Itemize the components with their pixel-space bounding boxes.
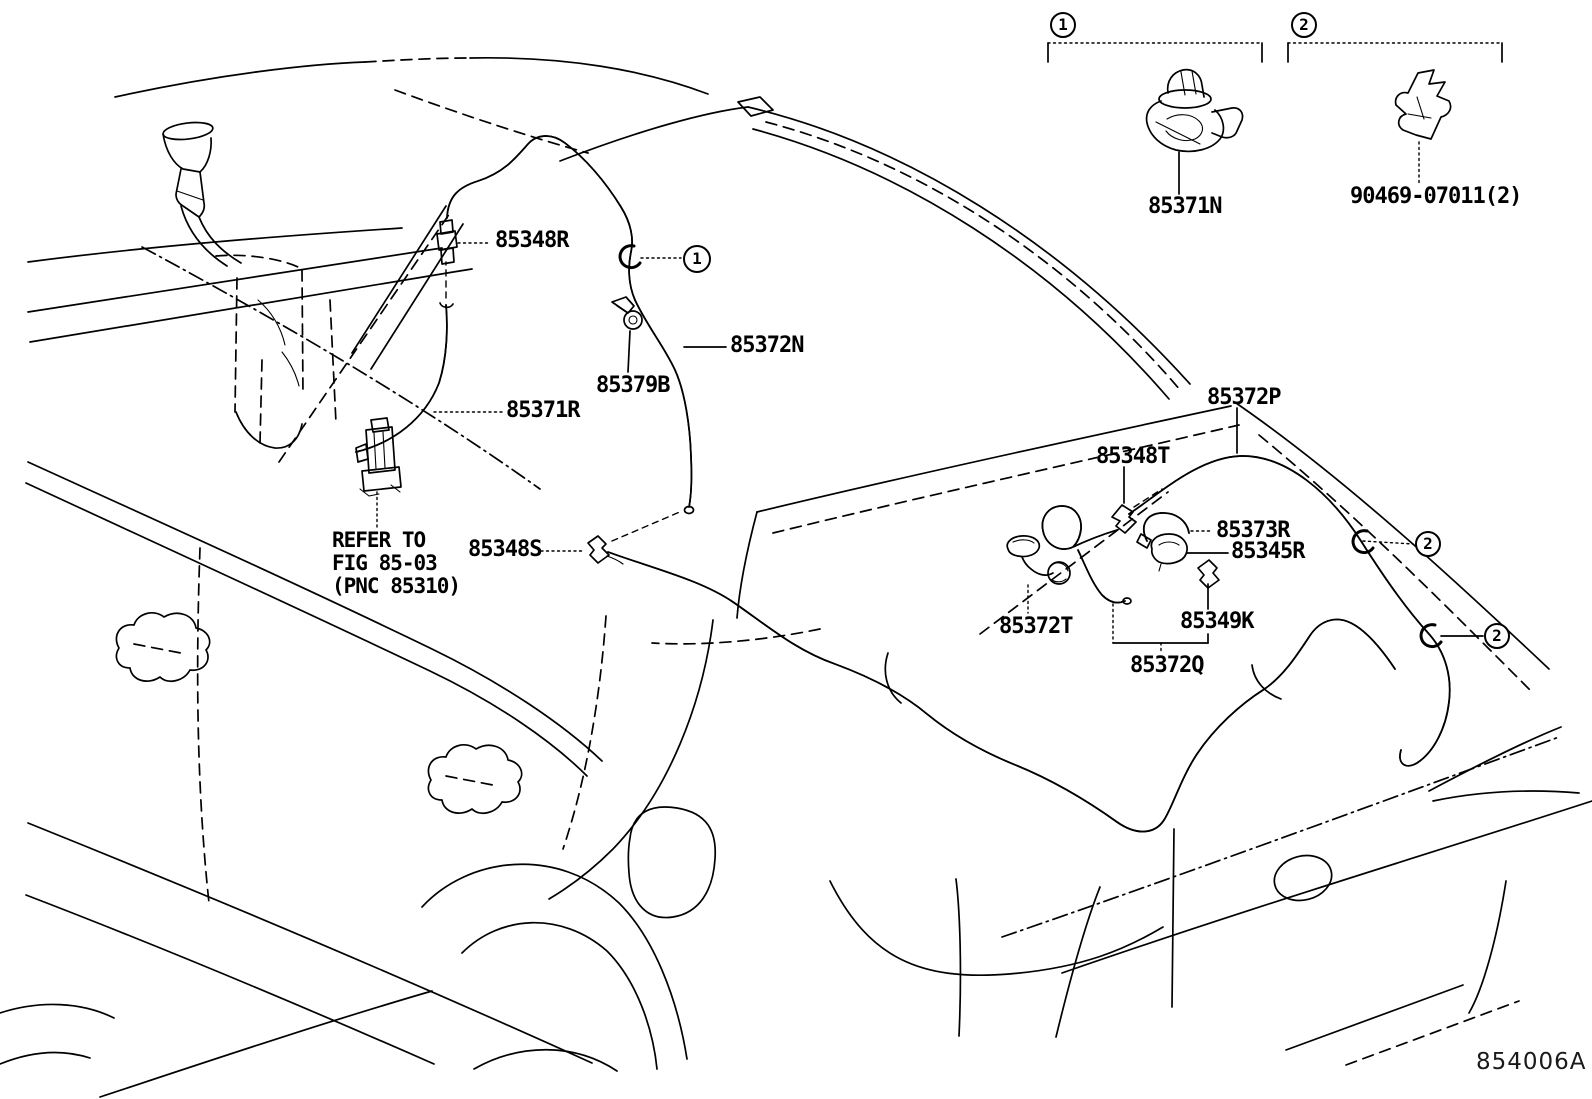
wheel-arch-outer <box>422 864 687 1059</box>
washer-reservoir-assembly <box>162 120 401 496</box>
screw-grommet-90469-part <box>1396 70 1451 139</box>
diagram-line-art <box>0 0 1592 1099</box>
leader-lines <box>377 43 1502 653</box>
reference-note-line: REFER TO <box>332 529 460 552</box>
callout-2-on-hose-upper[interactable]: 2 <box>1415 531 1441 557</box>
clip-85371N-part <box>1147 70 1243 152</box>
wheel-arch-inner <box>462 923 657 1069</box>
part-label-85345r[interactable]: 85345R <box>1231 541 1304 563</box>
callout-inset-2[interactable]: 2 <box>1291 12 1317 38</box>
part-label-90469-07011[interactable]: 90469-07011(2) <box>1350 186 1521 208</box>
nozzle-85345R-part <box>1151 534 1187 571</box>
elbow-85348S-part <box>588 536 623 564</box>
callout-1-on-hose[interactable]: 1 <box>683 245 711 273</box>
door-handle <box>428 745 521 813</box>
callout-inset-1[interactable]: 1 <box>1050 12 1076 38</box>
part-label-85348t[interactable]: 85348T <box>1096 446 1169 468</box>
connector-85373R-part <box>1137 534 1151 548</box>
washer-pump <box>356 418 401 496</box>
part-label-85372t[interactable]: 85372T <box>999 616 1072 638</box>
hatch-badge-oval <box>1270 850 1337 907</box>
rear-washer-parts-diagram: 85348R 85372N 85379B 85371R 85348S 85371… <box>0 0 1592 1099</box>
part-label-85372n[interactable]: 85372N <box>730 335 803 357</box>
part-label-85372p[interactable]: 85372P <box>1207 387 1280 409</box>
hose-fittings <box>437 220 1441 647</box>
part-label-85371r[interactable]: 85371R <box>506 400 579 422</box>
figure-code: 854006A <box>1476 1049 1587 1075</box>
reference-note: REFER TO FIG 85-03 (PNC 85310) <box>332 529 460 598</box>
joint-85348T-part <box>1112 505 1136 533</box>
vehicle-body-lines <box>0 58 1592 1097</box>
part-label-85379b[interactable]: 85379B <box>596 375 669 397</box>
filler-funnel-mouth <box>162 120 214 142</box>
grommet-85379B-part <box>612 297 642 329</box>
joint-85348R-part <box>437 220 457 264</box>
part-label-85349k[interactable]: 85349K <box>1180 611 1253 633</box>
reference-note-line: (PNC 85310) <box>332 575 460 598</box>
part-label-85348s[interactable]: 85348S <box>468 539 541 561</box>
part-label-85348r[interactable]: 85348R <box>495 230 568 252</box>
nozzle-85372T-part <box>1007 536 1070 584</box>
reference-note-line: FIG 85-03 <box>332 552 460 575</box>
door-handle <box>116 613 209 681</box>
part-label-85371n[interactable]: 85371N <box>1148 196 1221 218</box>
part-label-85372q[interactable]: 85372Q <box>1130 655 1203 677</box>
callout-2-on-hose-lower[interactable]: 2 <box>1484 623 1510 649</box>
